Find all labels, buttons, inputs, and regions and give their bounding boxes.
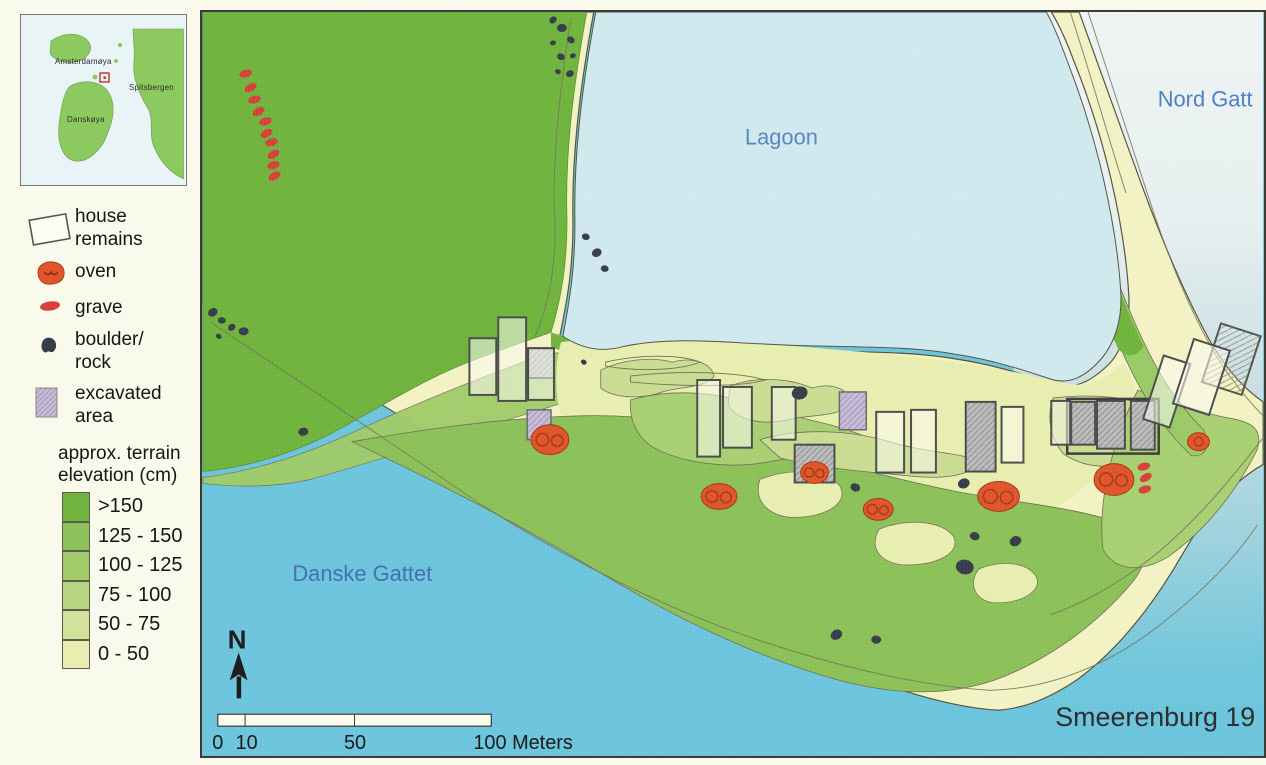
legend-label-grave: grave [75, 296, 123, 319]
legend-item-excavated-area: excavated area [0, 382, 200, 437]
elevation-swatch [62, 581, 90, 611]
elevation-class-label: 100 - 125 [98, 554, 183, 577]
scanned-map-page: { "inset": { "labels": { "amsterdamoya":… [0, 0, 1266, 765]
inset-islet [114, 59, 118, 63]
legend-label-house-remains: house remains [75, 205, 143, 251]
lagoon-label: Lagoon [745, 124, 818, 149]
site-map-graphic: Lagoon Nord Gatt Danske Gattet Smeerenbu… [202, 12, 1264, 756]
scale-label-50: 50 [344, 732, 366, 754]
site-map: Lagoon Nord Gatt Danske Gattet Smeerenbu… [200, 10, 1266, 758]
boulder-rock-icon [36, 334, 62, 358]
legend-label-excavated-area: excavated area [75, 382, 162, 428]
inset-site-marker-dot [104, 77, 107, 80]
map-title-label: Smeerenburg 19 [1055, 702, 1255, 732]
inset-label-danskoya: Danskøya [67, 115, 105, 124]
elevation-swatch [62, 640, 90, 670]
inset-locator-map: Amsterdamøya Spitsbergen Danskøya [20, 14, 187, 186]
north-arrow-tail [237, 676, 241, 698]
north-arrow-label: N [228, 627, 247, 655]
legend-label-oven: oven [75, 260, 116, 283]
oven-icon [30, 258, 70, 288]
nord-gattet-label: Nord Gatt [1158, 86, 1253, 111]
halftone-texture [203, 12, 1263, 756]
elevation-class-label: 0 - 50 [98, 643, 149, 666]
inset-label-amsterdamoya: Amsterdamøya [55, 57, 112, 66]
excavated-area-icon [34, 386, 60, 420]
elevation-class-label: >150 [98, 495, 143, 518]
grave-icon [34, 297, 66, 315]
elevation-class-label: 75 - 100 [98, 584, 171, 607]
inset-map-graphic [21, 15, 184, 183]
inset-islet [93, 75, 98, 80]
scale-label-10: 10 [236, 732, 258, 754]
legend-item-oven: oven [0, 258, 200, 290]
elevation-legend-title: approx. terrain elevation (cm) [58, 443, 208, 487]
elevation-class-label: 50 - 75 [98, 613, 160, 636]
inset-islet [118, 43, 122, 47]
scale-label-0: 0 [212, 732, 223, 754]
legend-label-boulder-rock: boulder/ rock [75, 328, 144, 374]
legend-item-house-remains: house remains [0, 205, 200, 260]
elevation-swatch [62, 522, 90, 552]
danske-gattet-label: Danske Gattet [292, 561, 432, 586]
legend-item-boulder-rock: boulder/ rock [0, 328, 200, 383]
elevation-swatch [62, 610, 90, 640]
elevation-class-label: 125 - 150 [98, 525, 183, 548]
scale-label-100-meters: 100 Meters [473, 732, 572, 754]
legend-item-grave: grave [0, 294, 200, 322]
elevation-swatch [62, 492, 90, 522]
house-remains-icon [24, 209, 74, 251]
elevation-swatch [62, 551, 90, 581]
legend-panel: Amsterdamøya Spitsbergen Danskøya house … [0, 0, 200, 765]
inset-label-spitsbergen: Spitsbergen [129, 83, 174, 92]
